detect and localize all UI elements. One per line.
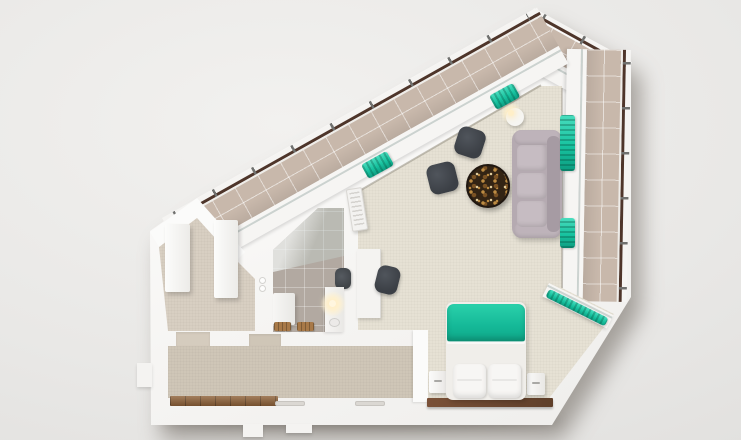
- bed-pillow-left: [453, 364, 486, 398]
- sofa-cushion-3: [517, 201, 547, 227]
- floor-vent-2: [355, 401, 385, 406]
- bathroom-cabinet: [273, 293, 295, 325]
- sofa: [512, 130, 562, 238]
- bed-blanket: [447, 304, 525, 342]
- sink-basin: [329, 318, 340, 327]
- wardrobe-2: [214, 220, 238, 298]
- wall-tab-bottom-2: [286, 424, 312, 433]
- nightstand-right: [527, 373, 545, 395]
- wall-tab-bottom-1: [243, 424, 263, 437]
- table-lamp: [508, 110, 514, 116]
- scene-title: apartment-floor-plan-3d-render-top-view: [0, 0, 1, 1]
- bath-mat-2: [297, 322, 314, 331]
- sofa-cushion-1: [517, 145, 547, 171]
- curtain-right-top: [560, 115, 575, 171]
- doorway-hallway: [176, 332, 210, 346]
- toilet-paper-roll-1: [259, 277, 266, 284]
- double-bed: [446, 302, 526, 400]
- toilet: [335, 268, 351, 289]
- mirror-light: [329, 300, 336, 307]
- curtain-right-bottom: [560, 218, 575, 248]
- bath-mat-1: [274, 322, 291, 331]
- nightstand-left: [429, 371, 447, 393]
- bed-pillow-right: [488, 364, 521, 398]
- sofa-backrest: [547, 136, 560, 232]
- doorway-bathroom: [249, 334, 281, 346]
- floor-vent-1: [275, 401, 305, 406]
- balcony-tiles: [583, 49, 621, 302]
- balcony-segment-right: [563, 49, 631, 302]
- bed-blanket-fold: [447, 341, 525, 344]
- toilet-paper-roll-2: [259, 285, 266, 292]
- coffee-table: [466, 164, 510, 208]
- floor-plan-render: apartment-floor-plan-3d-render-top-view: [0, 0, 741, 440]
- bedroom-corridor-wall: [413, 330, 428, 402]
- wall-tab-left: [137, 363, 152, 387]
- corridor-floor: [168, 346, 413, 398]
- wardrobe-1: [165, 224, 190, 292]
- sofa-cushion-2: [517, 173, 547, 199]
- entry-wood-threshold: [170, 396, 278, 406]
